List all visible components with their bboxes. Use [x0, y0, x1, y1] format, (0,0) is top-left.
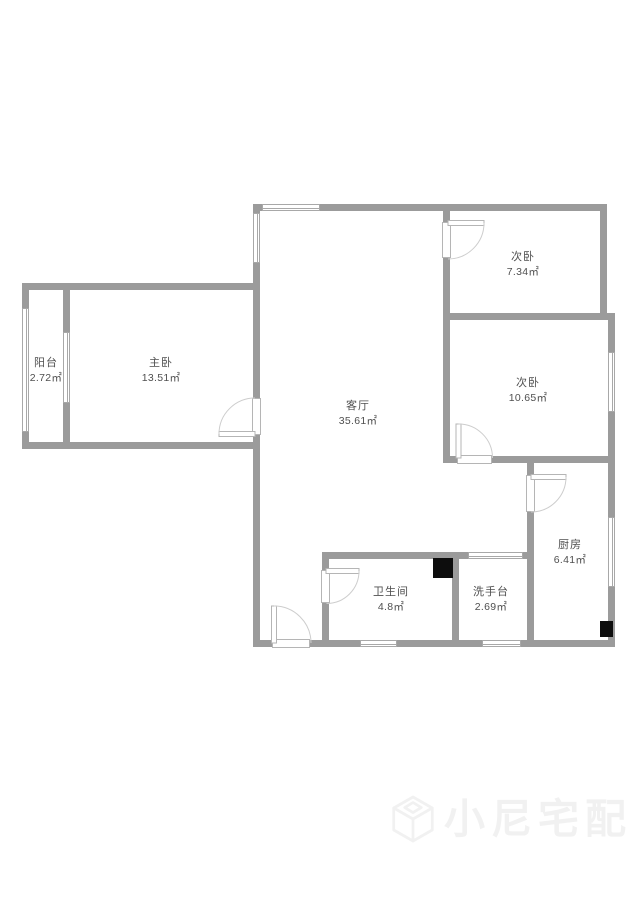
- door-arc: [448, 223, 484, 259]
- fixture-block-kitchen: [600, 621, 613, 637]
- room-label-bathroom: 卫生间 4.8㎡: [373, 586, 409, 614]
- room-area: 35.61㎡: [339, 415, 378, 428]
- window-balcony-left: [22, 308, 29, 432]
- window-living-top: [262, 204, 320, 211]
- wall-bath-wash-divider: [452, 552, 459, 647]
- room-label-balcony: 阳台 2.72㎡: [30, 357, 62, 385]
- door-opening-kitchen: [526, 475, 535, 512]
- door-swings: [0, 0, 640, 905]
- window-balcony-divider: [63, 332, 70, 403]
- brand-text: 小尼宅配: [444, 799, 632, 840]
- window-bedroom-b-right: [608, 352, 615, 412]
- room-label-living-room: 客厅 35.61㎡: [339, 400, 378, 428]
- door-opening-entrance: [272, 639, 310, 648]
- wall-left-wing-bottom: [22, 442, 260, 449]
- door-leaf: [531, 475, 566, 480]
- wall-left-wing-top: [22, 283, 260, 290]
- door-arc: [274, 606, 311, 643]
- room-label-bedroom-b: 次卧 10.65㎡: [509, 377, 548, 405]
- room-name: 次卧: [509, 377, 548, 391]
- window-living-left: [253, 213, 260, 263]
- room-name: 次卧: [507, 251, 539, 265]
- cube-logo-icon: [391, 795, 435, 843]
- window-kitchen-right: [608, 517, 615, 587]
- room-area: 4.8㎡: [373, 601, 409, 614]
- door-arc: [219, 398, 255, 434]
- wall-bedroom-divider: [443, 313, 615, 320]
- window-bathroom-bottom: [360, 640, 397, 647]
- floor-plan: 阳台 2.72㎡ 主卧 13.51㎡ 客厅 35.61㎡ 次卧 7.34㎡ 次卧…: [0, 0, 640, 905]
- room-area: 2.72㎡: [30, 372, 62, 385]
- room-area: 6.41㎡: [554, 554, 586, 567]
- room-label-kitchen: 厨房 6.41㎡: [554, 539, 586, 567]
- door-arc: [459, 424, 493, 458]
- door-leaf: [219, 432, 255, 437]
- window-washstand-bottom: [482, 640, 521, 647]
- watermark: 小尼宅配: [391, 794, 632, 844]
- room-name: 客厅: [339, 400, 378, 414]
- room-area: 13.51㎡: [142, 372, 181, 385]
- room-name: 洗手台: [473, 586, 509, 600]
- room-label-washstand: 洗手台 2.69㎡: [473, 586, 509, 614]
- door-arc: [531, 477, 566, 512]
- door-leaf: [272, 606, 277, 643]
- room-name: 厨房: [554, 539, 586, 553]
- door-opening-bedroom-b: [457, 455, 492, 464]
- window-washstand-top: [468, 552, 523, 559]
- door-leaf: [326, 569, 359, 574]
- room-area: 7.34㎡: [507, 266, 539, 279]
- door-leaf: [456, 424, 461, 458]
- wall-bedroom-a-right: [600, 204, 607, 320]
- room-area: 10.65㎡: [509, 392, 548, 405]
- fixture-block-bathroom: [433, 558, 453, 578]
- room-area: 2.69㎡: [473, 601, 509, 614]
- room-name: 卫生间: [373, 586, 409, 600]
- door-opening-bedroom-a: [442, 222, 451, 258]
- room-name: 主卧: [142, 357, 181, 371]
- door-opening-bathroom: [321, 570, 330, 603]
- door-leaf: [448, 221, 484, 226]
- door-opening-master: [252, 398, 261, 435]
- door-arc: [327, 571, 360, 604]
- room-label-bedroom-a: 次卧 7.34㎡: [507, 251, 539, 279]
- room-label-master-bedroom: 主卧 13.51㎡: [142, 357, 181, 385]
- room-name: 阳台: [30, 357, 62, 371]
